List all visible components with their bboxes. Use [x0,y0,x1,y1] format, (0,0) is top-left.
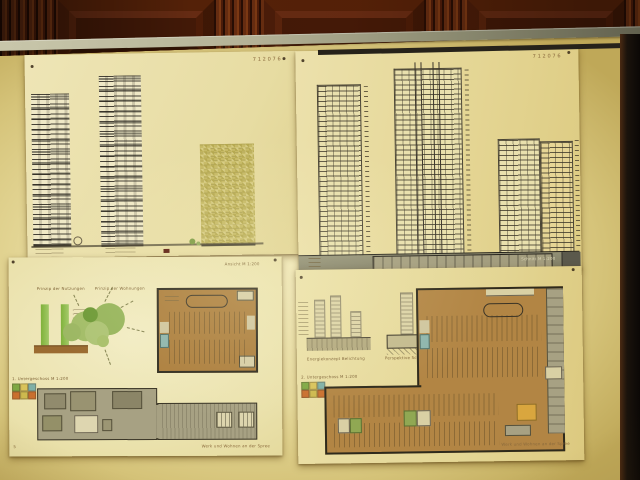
entry-code: 712076 [533,53,563,59]
band-note: Schnitt M 1:200 [521,257,555,262]
tower-elevation-1 [31,93,71,247]
ramp-oval [483,303,523,318]
ramp-oval [186,295,228,308]
legend-swatch [301,382,309,390]
legend-swatch [301,390,309,398]
white-room [160,322,169,333]
basement-plan-right [157,403,257,440]
legend-swatch [20,391,28,399]
legend-swatches [12,383,34,397]
core-lines [414,62,424,254]
white-room [338,418,350,433]
principle-right-title: Prinzip der Wohnungen [95,287,145,292]
plan-room [112,391,142,409]
pin [282,57,285,60]
tree-entourage [189,238,195,244]
diagram-tower [314,300,326,340]
white-notch [486,289,534,297]
legend-title: 2. Untergeschoss M 1:200 [301,375,357,380]
photo-scene: 712076 712076 Schnitt M 1:200 [0,0,640,480]
annotation-lines [165,296,179,302]
legend-swatch [12,383,20,391]
plan-room [102,419,112,431]
room-green [350,418,362,433]
diagram-ground [307,337,371,351]
annotation-lines [298,302,308,336]
facade-mosaic [200,144,256,247]
pin [567,51,570,54]
room-orange [517,404,537,421]
caption-left: Energiekonzept Belichtung [307,357,365,362]
parking-stalls [426,315,541,343]
level-ticks [465,70,472,251]
diagram-tower [350,311,361,339]
legend-swatches [301,382,323,396]
scale-note: Ansicht M 1:200 [225,263,260,267]
legend-swatch [28,383,36,391]
parking-stalls [427,347,542,379]
annotation-lines [35,249,63,257]
level-ticks [575,140,581,250]
white-room [417,410,431,426]
entry-code: 712076 [253,56,283,62]
white-room [545,366,562,379]
legend-swatch [309,390,317,398]
leader-line [105,349,111,364]
page-number: 5 [13,445,16,449]
plan-room [42,415,62,431]
board-right-edge [620,34,640,480]
level-ticks [364,86,371,252]
tree-entourage [196,241,200,245]
sheet-elevations: 712076 [24,51,299,258]
legend-title: 1. Untergeschoss M 1:200 [12,377,68,382]
pin [274,259,277,262]
principle-left-title: Prinzip der Nutzungen [37,287,85,292]
parking-stalls [169,340,245,364]
sheet-plans-right: Energiekonzept Belichtung Perspektive Sc… [296,266,585,464]
stair-core [238,412,254,428]
stair-core-teal [160,334,169,348]
bubble [63,323,81,341]
white-room [247,316,255,330]
detail-circle [73,236,82,245]
core-lines [432,62,442,254]
leader-line [73,295,79,306]
basement-plan-left [37,388,157,440]
plan-room [44,393,66,409]
leader-line [121,301,134,308]
plan-join [421,379,560,391]
leader-line [127,327,145,332]
legend-swatch [309,382,317,390]
legend-swatch [12,391,20,399]
legend-swatch [28,391,36,399]
pin [31,65,34,68]
sheet-sections: 712076 Schnitt M 1:200 [295,47,581,274]
diagram-tower [330,295,342,339]
bubble-dark [83,307,98,322]
plan-room [70,391,96,411]
car-entourage [163,249,169,253]
plan-room-white [74,415,98,433]
stair-core [216,412,232,428]
room-green [404,410,417,426]
project-footer: Werk und Wohnen an der Spree [202,445,270,450]
sheet-plans-left: Ansicht M 1:200 Prinzip der Nutzungen Pr… [9,257,283,457]
bubble [97,335,109,347]
pin [301,59,304,62]
tower-section-4 [540,141,575,253]
green-bar [41,304,49,345]
tower-section-2 [394,68,465,255]
pin [572,268,575,271]
pin [12,260,15,263]
pin [300,276,303,279]
annotation-lines [105,247,135,255]
plinth-bar [34,345,88,353]
stair-core-teal [420,334,430,349]
diagram-tower [400,292,414,334]
parking-plan-square [157,288,258,373]
room-gray [505,425,531,436]
legend-swatch [20,383,28,391]
white-room [419,320,429,333]
tower-elevation-2 [99,75,144,247]
plan-join [156,405,160,438]
tower-section-1 [317,84,364,256]
edge-rooms-strip [546,288,565,433]
parking-stalls [169,312,245,334]
white-room [237,291,254,301]
tower-section-3 [498,138,542,253]
